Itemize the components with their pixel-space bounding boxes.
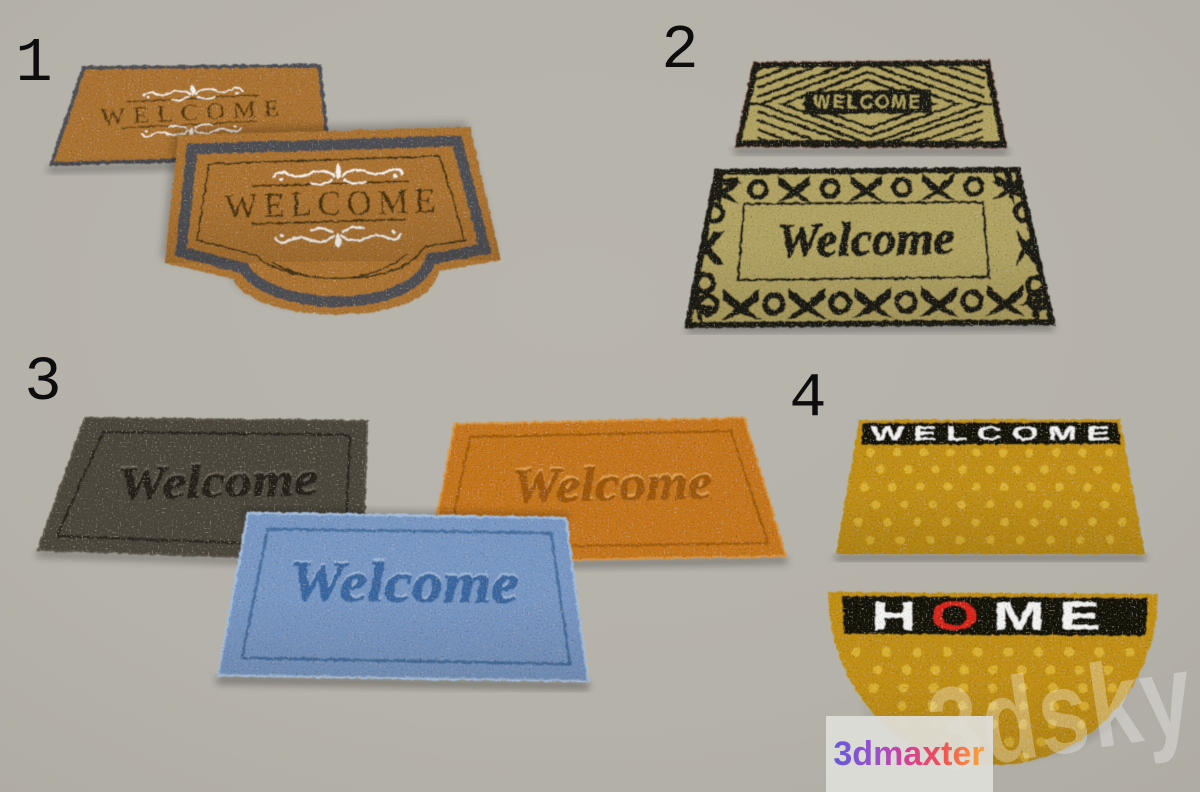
svg-text:Welcome: Welcome <box>117 453 318 511</box>
svg-text:3: 3 <box>24 347 61 418</box>
svg-text:3dmaxter: 3dmaxter <box>833 735 984 773</box>
svg-text:WELCOME: WELCOME <box>813 92 922 112</box>
svg-text:1: 1 <box>15 28 52 99</box>
svg-text:4: 4 <box>789 363 826 434</box>
svg-text:2: 2 <box>661 15 698 86</box>
svg-text:Welcome: Welcome <box>512 456 713 514</box>
